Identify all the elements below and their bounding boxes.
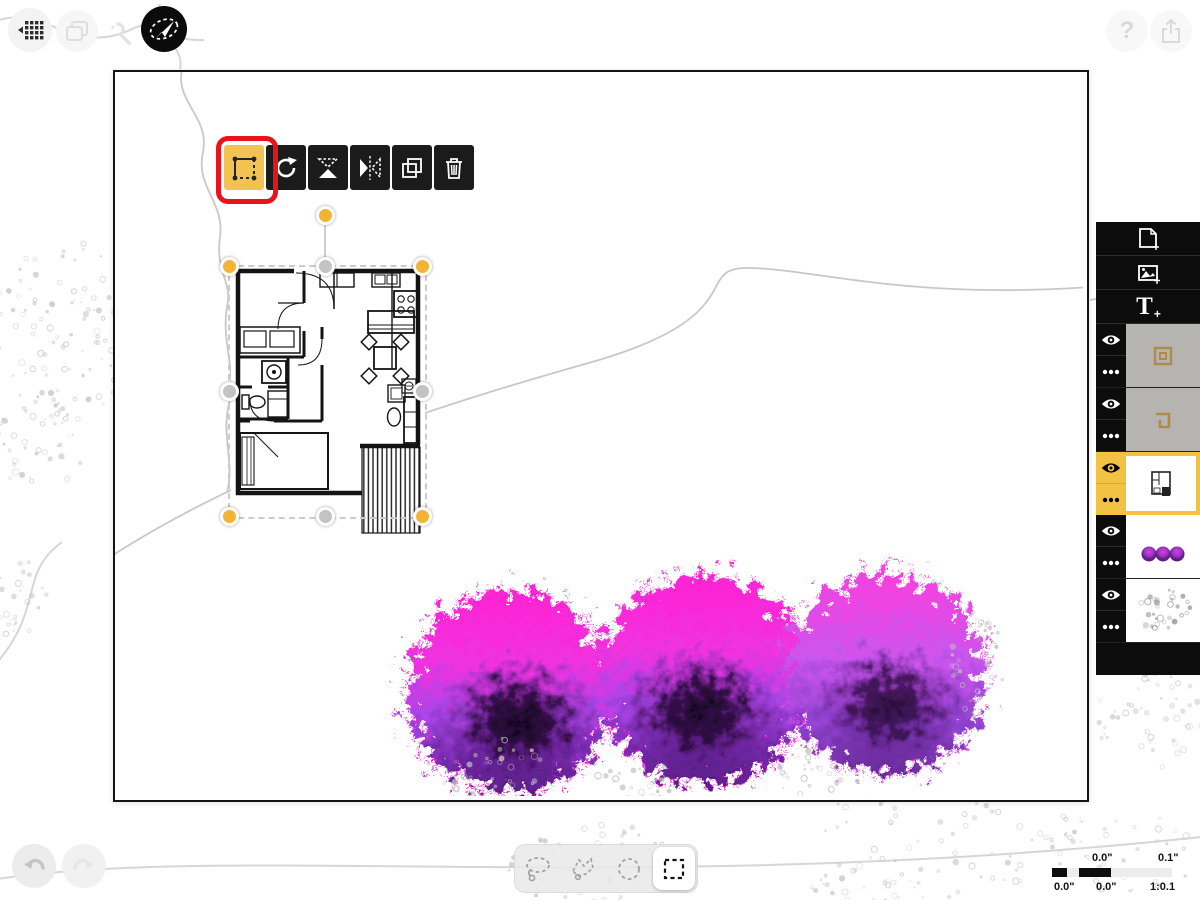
rotation-anchor-handle[interactable]	[316, 257, 335, 276]
layer-options-button[interactable]	[1096, 483, 1126, 515]
polygon-lasso-icon	[568, 854, 598, 884]
redo-icon	[70, 852, 98, 880]
speckle-texture	[1126, 580, 1200, 642]
freehand-lasso-tool[interactable]	[517, 847, 559, 890]
resize-handle-mid-right[interactable]	[413, 382, 432, 401]
add-text-icon: T	[1136, 294, 1153, 319]
pages-button[interactable]	[56, 10, 98, 52]
layer-options-button[interactable]	[1096, 355, 1126, 387]
scale-label-top-left: 0.0"	[1092, 852, 1113, 864]
trees-artwork[interactable]	[408, 574, 986, 794]
scale-label-top-right: 0.1"	[1158, 852, 1179, 864]
polygon-lasso-tool[interactable]	[562, 847, 604, 890]
layer-options-button[interactable]	[1096, 546, 1126, 578]
help-icon: ?	[1120, 17, 1135, 45]
grid-menu-button[interactable]	[8, 8, 52, 52]
three-purple-trees	[1135, 527, 1191, 567]
flip-horizontal-button[interactable]	[350, 145, 390, 190]
resize-handle-bottom-right[interactable]	[413, 507, 432, 526]
floor-plan-image[interactable]	[231, 266, 425, 537]
flip-vertical-icon	[313, 153, 343, 183]
layer-row-sketch[interactable]	[1096, 579, 1200, 643]
add-text-button[interactable]: T+	[1096, 290, 1200, 324]
ellipsis-icon	[1102, 624, 1120, 630]
rotate-handle[interactable]	[316, 206, 335, 225]
square-outline-glyph	[1148, 341, 1178, 371]
rectangle-select-icon	[659, 854, 689, 884]
app-window: { "colors": { "accent_yellow": "#F2C243"…	[0, 0, 1200, 900]
layer-thumbnail[interactable]	[1126, 456, 1196, 511]
resize-handle-mid-left[interactable]	[220, 382, 239, 401]
grid-menu-icon	[14, 14, 46, 46]
ellipse-select-icon	[614, 854, 644, 884]
undo-icon	[20, 852, 48, 880]
eye-icon	[1101, 334, 1121, 346]
redo-button[interactable]	[62, 844, 106, 888]
ellipsis-icon	[1102, 497, 1120, 503]
add-page-icon	[1134, 225, 1162, 253]
layer-options-button[interactable]	[1096, 419, 1126, 451]
layer-thumbnail[interactable]	[1126, 515, 1200, 578]
eye-icon	[1101, 462, 1121, 474]
resize-handle-bottom-left[interactable]	[220, 507, 239, 526]
scale-ratio-label: 1:0.1	[1150, 881, 1175, 893]
scale-ruler-bar	[1052, 868, 1172, 877]
layer-thumbnail[interactable]	[1126, 579, 1200, 642]
scale-label-bottom-left: 0.0"	[1054, 881, 1075, 893]
tools-button[interactable]	[102, 13, 142, 53]
layer-options-button[interactable]	[1096, 610, 1126, 642]
corner-shape-glyph	[1148, 405, 1178, 435]
pages-icon	[62, 16, 92, 46]
scale-ruler: 0.0" 0.1" 0.0" 0.0" 1:0.1	[1046, 852, 1196, 896]
ellipsis-icon	[1102, 433, 1120, 439]
eye-icon	[1101, 398, 1121, 410]
layer-row-trees[interactable]	[1096, 515, 1200, 579]
rotate-button[interactable]	[266, 145, 306, 190]
transform-scale-button[interactable]	[224, 145, 264, 190]
layer-visibility-toggle[interactable]	[1096, 579, 1126, 610]
ellipsis-icon	[1102, 369, 1120, 375]
resize-handle-top-right[interactable]	[413, 257, 432, 276]
resize-handle-bottom-center[interactable]	[316, 507, 335, 526]
layer-visibility-toggle[interactable]	[1096, 324, 1126, 355]
layer-visibility-toggle[interactable]	[1096, 515, 1126, 546]
rotate-icon	[271, 153, 301, 183]
layer-thumbnail[interactable]	[1126, 324, 1200, 387]
duplicate-icon	[397, 153, 427, 183]
selection-cursor-icon	[147, 12, 181, 46]
rectangle-select-tool[interactable]	[653, 847, 695, 890]
ellipse-select-tool[interactable]	[608, 847, 650, 890]
resize-handle-top-left[interactable]	[220, 257, 239, 276]
duplicate-button[interactable]	[392, 145, 432, 190]
layer-visibility-toggle[interactable]	[1096, 452, 1126, 483]
add-image-button[interactable]	[1096, 256, 1200, 290]
selection-tools-bar	[514, 844, 698, 893]
layer-row-shape-2[interactable]	[1096, 388, 1200, 452]
ellipsis-icon	[1102, 560, 1120, 566]
add-image-icon	[1134, 259, 1162, 287]
transform-toolbar	[224, 145, 474, 190]
layer-visibility-toggle[interactable]	[1096, 388, 1126, 419]
delete-button[interactable]	[434, 145, 474, 190]
add-page-button[interactable]	[1096, 222, 1200, 256]
flip-vertical-button[interactable]	[308, 145, 348, 190]
transform-icon	[229, 153, 259, 183]
scale-label-bottom-center: 0.0"	[1096, 881, 1117, 893]
floor-plan-mini	[1148, 467, 1174, 501]
eye-icon	[1101, 525, 1121, 537]
layer-row-floor-plan[interactable]	[1096, 452, 1200, 515]
eye-icon	[1101, 589, 1121, 601]
share-icon	[1156, 16, 1186, 46]
select-mode-button[interactable]	[141, 6, 187, 52]
wrench-icon	[107, 18, 137, 48]
share-button[interactable]	[1150, 10, 1192, 52]
canvas-artboard[interactable]	[113, 70, 1089, 802]
lasso-icon	[523, 854, 553, 884]
undo-button[interactable]	[12, 844, 56, 888]
layer-row-shape-1[interactable]	[1096, 324, 1200, 388]
layers-panel: T+	[1096, 222, 1200, 675]
trash-icon	[439, 153, 469, 183]
layer-thumbnail[interactable]	[1126, 388, 1200, 451]
flip-horizontal-icon	[355, 153, 385, 183]
help-button[interactable]: ?	[1106, 10, 1148, 52]
